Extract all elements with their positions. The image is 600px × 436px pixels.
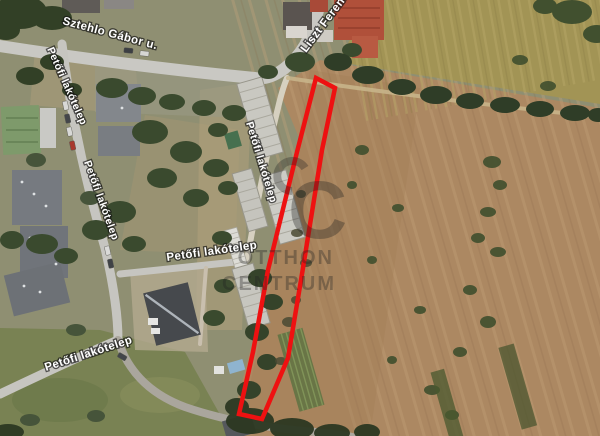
satellite-map-canvas[interactable]: C OTTHON CENTRUM Sztehlo Gábor u. Liszt … <box>0 0 600 436</box>
watermark-line2: CENTRUM <box>222 273 336 295</box>
watermark-monogram: C <box>288 165 349 256</box>
map-screenshot: C OTTHON CENTRUM Sztehlo Gábor u. Liszt … <box>0 0 600 436</box>
